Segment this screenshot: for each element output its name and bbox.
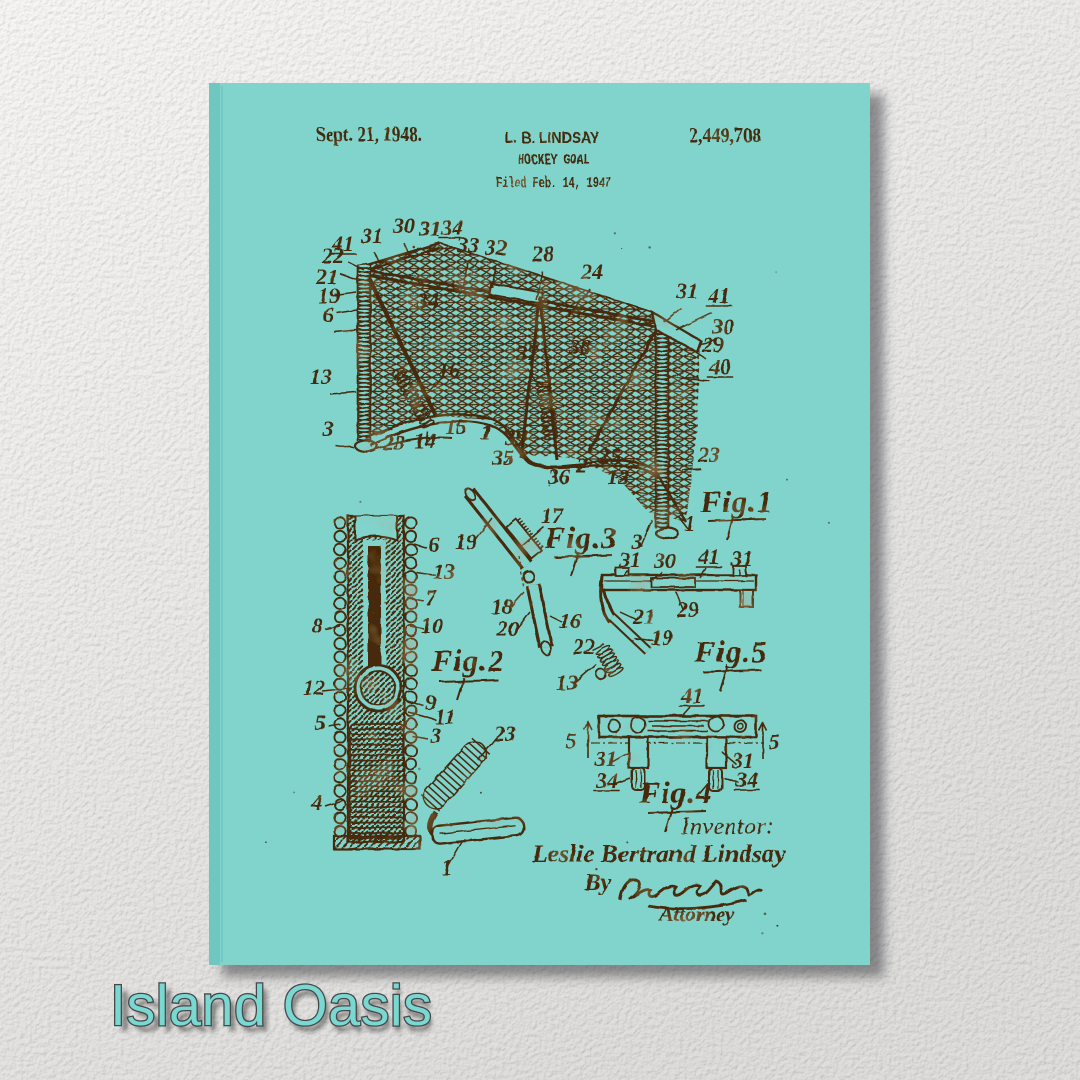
svg-text:34: 34	[735, 767, 758, 792]
svg-text:3: 3	[430, 723, 442, 748]
svg-text:Fig.1: Fig.1	[699, 484, 773, 519]
svg-text:38: 38	[568, 334, 591, 359]
svg-text:31: 31	[360, 223, 383, 248]
svg-text:31: 31	[618, 547, 641, 572]
svg-text:23: 23	[697, 442, 720, 467]
svg-text:8: 8	[312, 613, 323, 638]
svg-text:31: 31	[418, 216, 441, 241]
svg-text:By: By	[584, 870, 612, 896]
svg-text:Leslie Bertrand Lindsay: Leslie Bertrand Lindsay	[531, 839, 786, 868]
svg-text:Fig.5: Fig.5	[693, 634, 767, 669]
svg-text:13: 13	[433, 559, 455, 584]
svg-text:30: 30	[653, 548, 676, 573]
svg-text:5: 5	[769, 729, 780, 754]
svg-text:30: 30	[392, 213, 415, 238]
svg-text:Filed Feb. 14, 1947: Filed Feb. 14, 1947	[496, 175, 611, 192]
svg-text:Island Oasis: Island Oasis	[110, 974, 432, 1038]
svg-text:12: 12	[303, 675, 325, 700]
svg-text:5: 5	[566, 728, 577, 753]
svg-text:33: 33	[456, 232, 479, 257]
svg-text:7: 7	[426, 585, 438, 610]
svg-text:2,449,708: 2,449,708	[689, 123, 761, 147]
svg-text:22: 22	[572, 634, 595, 659]
svg-text:20: 20	[496, 616, 519, 641]
svg-text:Fig.4: Fig.4	[638, 775, 712, 810]
svg-text:15: 15	[445, 414, 467, 439]
svg-text:4: 4	[311, 790, 323, 815]
svg-text:14: 14	[414, 428, 436, 453]
svg-text:36: 36	[547, 464, 570, 489]
svg-text:40: 40	[708, 354, 731, 379]
svg-text:5: 5	[315, 710, 326, 735]
svg-text:23: 23	[382, 430, 405, 455]
svg-text:Inventor:: Inventor:	[680, 814, 775, 840]
svg-text:L. B. LINDSAY: L. B. LINDSAY	[505, 130, 599, 147]
svg-text:6: 6	[429, 532, 440, 557]
svg-text:23: 23	[493, 721, 516, 746]
svg-text:13: 13	[310, 364, 332, 389]
svg-text:Fig.2: Fig.2	[430, 643, 504, 678]
svg-text:28: 28	[531, 241, 554, 266]
svg-text:41: 41	[697, 544, 720, 569]
svg-text:3: 3	[322, 416, 334, 441]
svg-text:Attorney: Attorney	[658, 902, 735, 926]
svg-text:31: 31	[675, 278, 698, 303]
svg-text:24: 24	[580, 259, 603, 284]
svg-text:34: 34	[595, 768, 618, 793]
svg-text:Sept. 21, 1948.: Sept. 21, 1948.	[316, 122, 422, 146]
svg-text:6: 6	[323, 302, 334, 327]
svg-text:16: 16	[559, 608, 581, 633]
svg-text:41: 41	[680, 683, 703, 708]
svg-text:19: 19	[651, 625, 673, 650]
svg-text:31: 31	[730, 546, 753, 571]
svg-text:10: 10	[421, 613, 443, 638]
svg-text:41: 41	[707, 283, 730, 308]
svg-text:37: 37	[515, 340, 539, 365]
svg-text:32: 32	[484, 235, 507, 260]
svg-text:1: 1	[481, 420, 492, 445]
svg-text:1: 1	[685, 511, 696, 536]
svg-text:Fig.3: Fig.3	[543, 520, 617, 555]
svg-text:HOCKEY GOAL: HOCKEY GOAL	[518, 153, 590, 169]
svg-text:34: 34	[416, 288, 439, 313]
